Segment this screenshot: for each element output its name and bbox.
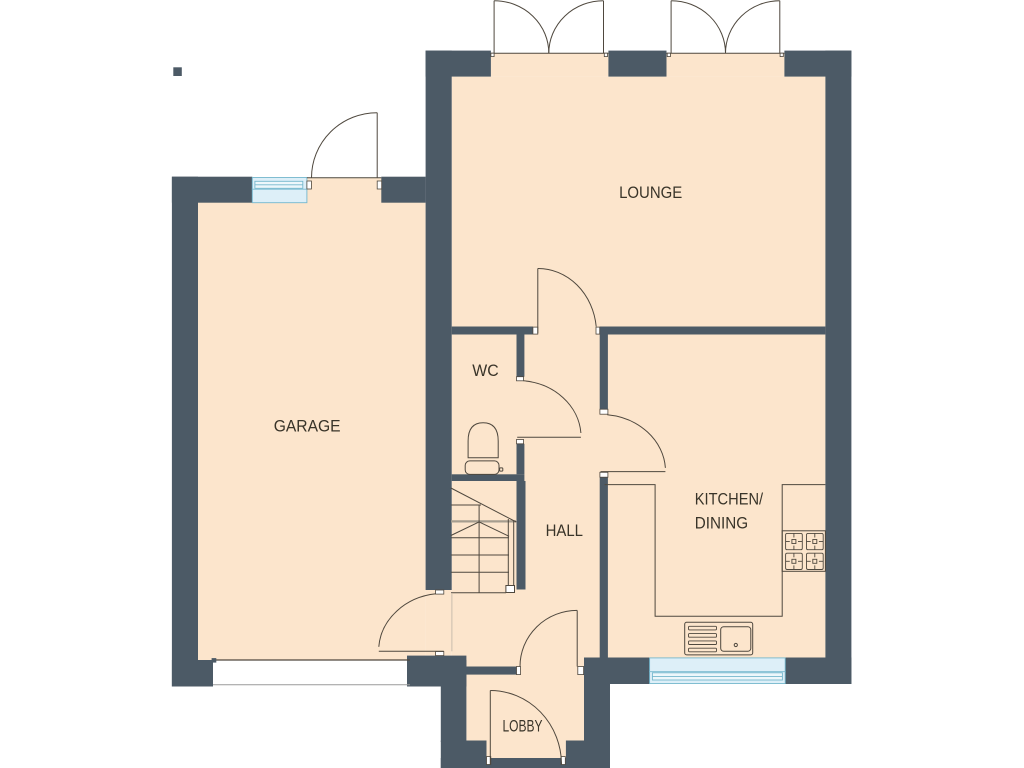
svg-text:GARAGE: GARAGE [274,417,341,435]
svg-text:LOUNGE: LOUNGE [619,183,682,202]
svg-text:DINING: DINING [695,514,748,532]
svg-text:KITCHEN/: KITCHEN/ [695,491,764,509]
svg-text:WC: WC [472,362,498,380]
svg-text:LOBBY: LOBBY [503,717,543,735]
svg-text:HALL: HALL [546,522,583,540]
